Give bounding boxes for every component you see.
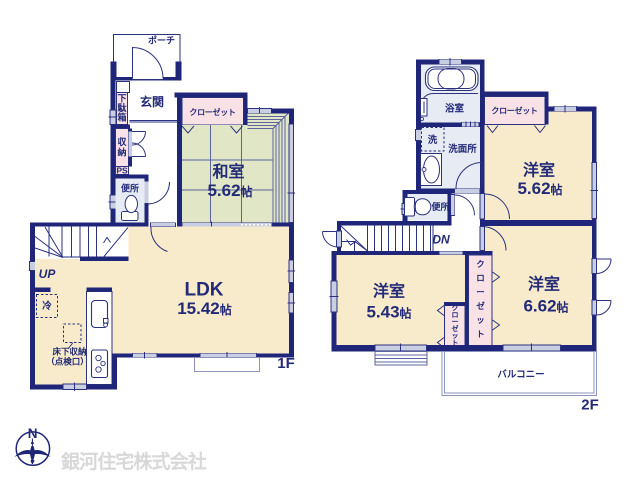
svg-text:ロ: ロ: [452, 311, 459, 319]
svg-text:UP: UP: [39, 267, 57, 281]
svg-text:ク: ク: [476, 259, 485, 269]
svg-text:ゼ: ゼ: [476, 301, 485, 311]
svg-text:クローゼット: クローゼット: [491, 106, 537, 116]
svg-text:洋室: 洋室: [373, 282, 405, 301]
svg-text:納: 納: [117, 147, 126, 158]
svg-text:ッ: ッ: [476, 315, 485, 325]
svg-text:ト: ト: [452, 339, 459, 347]
svg-text:洗: 洗: [428, 134, 438, 146]
svg-text:ゼ: ゼ: [452, 324, 459, 333]
svg-text:ッ: ッ: [452, 333, 459, 340]
svg-text:洋室: 洋室: [523, 161, 555, 180]
svg-text:冷: 冷: [42, 300, 52, 312]
svg-text:ー: ー: [452, 319, 459, 326]
svg-text:浴室: 浴室: [445, 103, 465, 115]
svg-text:バルコニー: バルコニー: [497, 369, 544, 381]
svg-text:DN: DN: [432, 233, 450, 247]
svg-text:ト: ト: [476, 329, 485, 339]
svg-text:下: 下: [117, 94, 126, 104]
svg-text:駄: 駄: [117, 102, 127, 113]
svg-text:銀河住宅株式会社: 銀河住宅株式会社: [61, 450, 207, 473]
svg-text:洋室: 洋室: [528, 275, 560, 294]
svg-text:ロ: ロ: [476, 273, 485, 283]
svg-text:ク: ク: [452, 303, 459, 312]
svg-text:玄関: 玄関: [140, 94, 164, 109]
svg-text:箱: 箱: [117, 112, 126, 123]
svg-text:ー: ー: [476, 287, 485, 297]
svg-text:和室: 和室: [212, 162, 244, 181]
svg-text:2F: 2F: [581, 397, 599, 414]
svg-text:LDK: LDK: [184, 280, 223, 301]
svg-text:クローゼット: クローゼット: [189, 107, 235, 117]
svg-text:ポーチ: ポーチ: [148, 35, 175, 46]
svg-text:（点検口）: （点検口）: [46, 357, 89, 367]
svg-text:PS: PS: [116, 166, 128, 176]
svg-text:便所: 便所: [121, 183, 139, 194]
svg-text:1F: 1F: [277, 355, 295, 372]
svg-text:洗面所: 洗面所: [448, 143, 477, 155]
svg-text:便所: 便所: [431, 201, 449, 212]
svg-text:床下収納: 床下収納: [52, 347, 86, 357]
svg-text:収: 収: [117, 136, 127, 147]
